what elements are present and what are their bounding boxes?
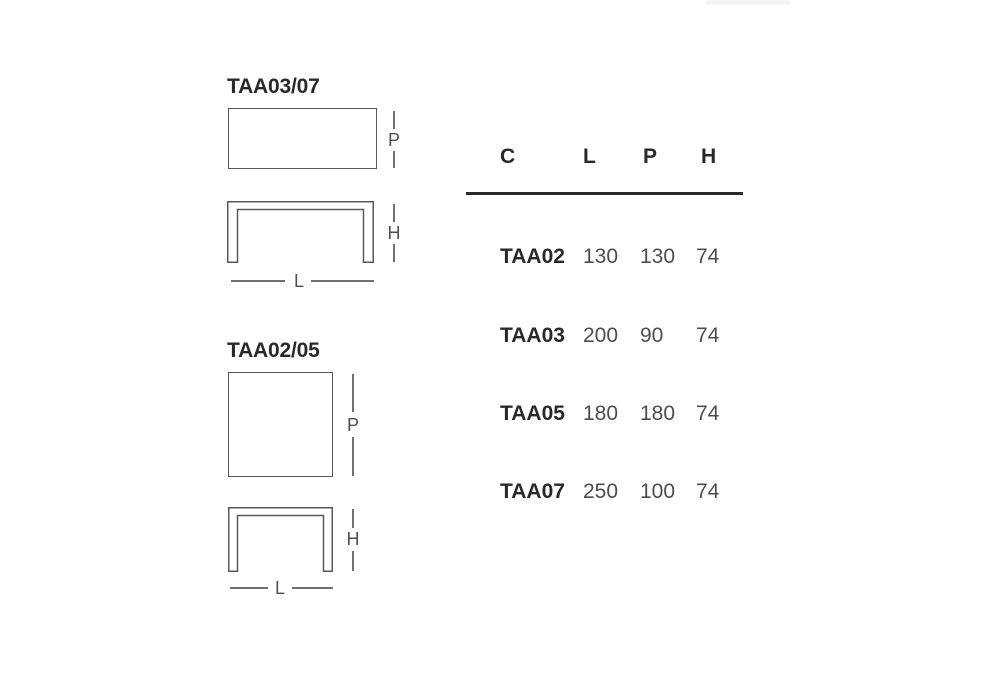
model-code: TAA02	[500, 246, 583, 268]
column-header-l: L	[583, 146, 640, 168]
diagram-title: TAA03/07	[227, 76, 320, 97]
front-view-outline	[228, 507, 334, 573]
height-value: 74	[696, 246, 738, 268]
length-value: 200	[583, 325, 640, 347]
depth-value: 90	[640, 325, 696, 347]
model-code: TAA07	[500, 481, 583, 503]
column-header-p: P	[640, 146, 696, 168]
product-spec-sheet: TAA03/07 P H L TAA02/05 P	[0, 0, 1000, 700]
dimension-label-p: P	[386, 131, 402, 149]
diagram-title: TAA02/05	[227, 340, 320, 361]
dimension-line	[393, 151, 395, 168]
dimension-line	[311, 280, 374, 282]
table-row: TAA05 180 180 74	[500, 403, 738, 425]
height-value: 74	[696, 403, 738, 425]
front-view-outline	[227, 201, 375, 264]
dimension-line	[352, 437, 354, 476]
model-code: TAA05	[500, 403, 583, 425]
depth-value: 100	[640, 481, 696, 503]
dimension-label-p: P	[345, 416, 361, 434]
depth-value: 130	[640, 246, 696, 268]
depth-value: 180	[640, 403, 696, 425]
length-value: 180	[583, 403, 640, 425]
dimension-line	[393, 244, 395, 262]
dimension-line	[393, 204, 395, 222]
dimension-line	[352, 509, 354, 528]
dimension-line	[352, 374, 354, 412]
table-row: TAA02 130 130 74	[500, 246, 738, 268]
dimension-label-h: H	[386, 224, 402, 242]
top-edge-artifact	[706, 0, 790, 5]
header-rule	[466, 192, 743, 195]
dimension-line	[231, 280, 285, 282]
dimension-line	[393, 111, 395, 129]
dimension-line	[352, 551, 354, 571]
length-value: 130	[583, 246, 640, 268]
dimension-label-l: L	[291, 272, 307, 290]
table-row: TAA03 200 90 74	[500, 325, 738, 347]
column-header-c: C	[500, 146, 583, 168]
dimension-line	[292, 587, 333, 589]
dimension-label-h: H	[345, 530, 361, 548]
table-row: TAA07 250 100 74	[500, 481, 738, 503]
dimension-line	[230, 587, 268, 589]
height-value: 74	[696, 481, 738, 503]
dimension-label-l: L	[272, 579, 288, 597]
column-header-h: H	[696, 146, 738, 168]
length-value: 250	[583, 481, 640, 503]
top-view-outline	[228, 372, 333, 477]
height-value: 74	[696, 325, 738, 347]
table-header: C L P H	[500, 146, 738, 168]
top-view-outline	[228, 108, 377, 169]
model-code: TAA03	[500, 325, 583, 347]
